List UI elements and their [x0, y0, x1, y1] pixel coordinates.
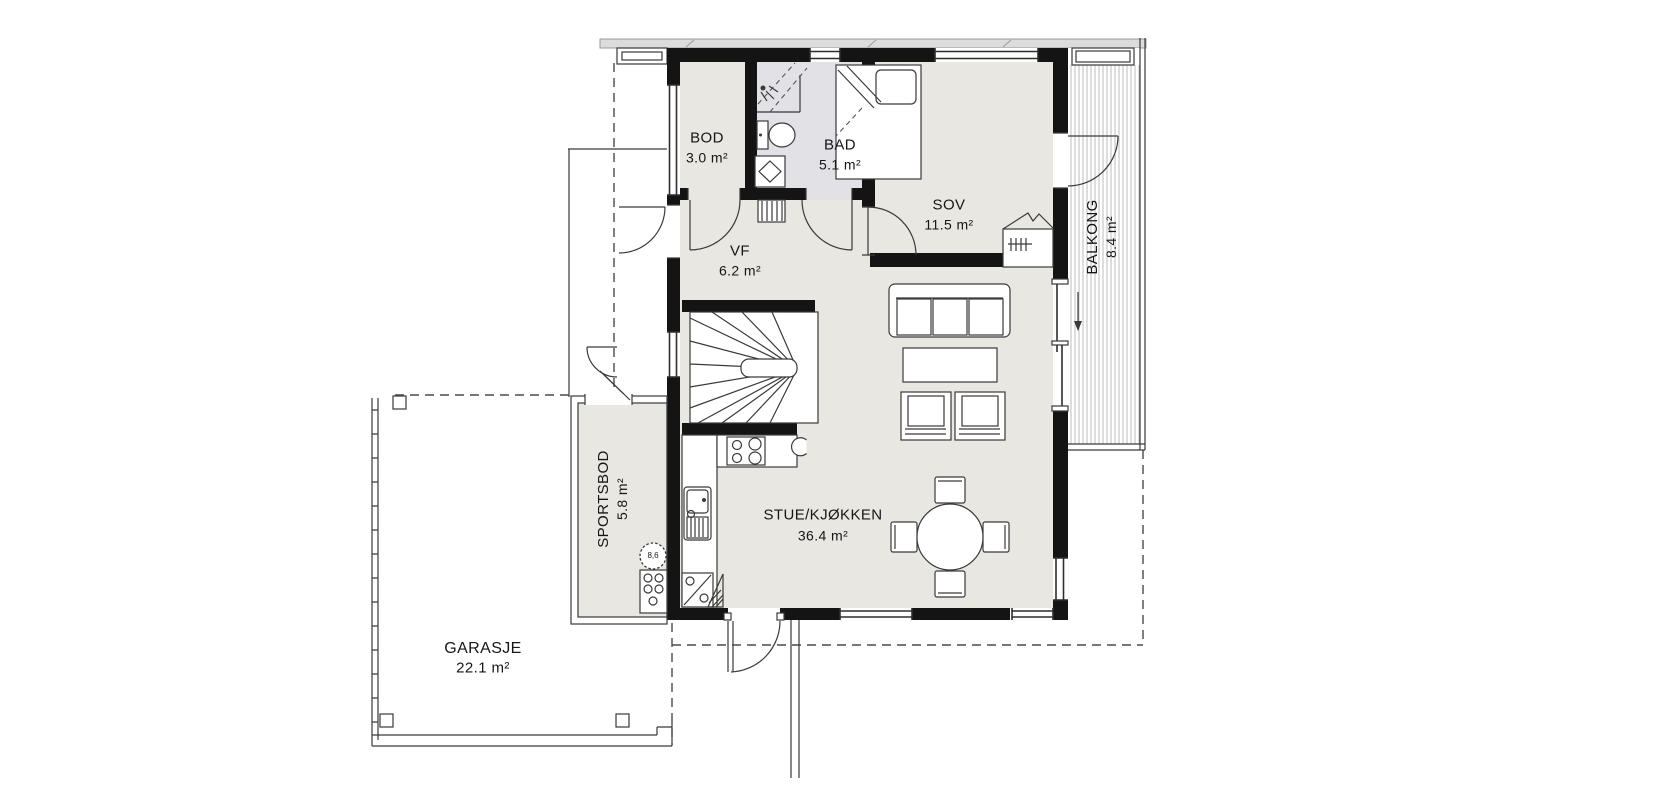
sofa [889, 284, 1010, 337]
sportsbod-area: 5.8 m² [614, 450, 632, 548]
coffee-table [903, 348, 997, 382]
room-area-bad: 5.1 m² [819, 156, 861, 174]
armchair [955, 392, 1005, 440]
post [380, 714, 393, 727]
room-label-balkong: BALKONG 8.4 m² [1084, 199, 1120, 274]
room-label-vf: VF [730, 243, 750, 262]
room-label-bad: BAD [824, 137, 856, 156]
window-bod-left [667, 85, 680, 195]
room-area-vf: 6.2 m² [719, 262, 761, 280]
floor-plan-page: BOD 3.0 m² BAD 5.1 m² SOV 11.5 m² VF 6.2… [0, 0, 1670, 800]
well-label: 8,6 [647, 551, 658, 561]
toilet [757, 121, 795, 149]
balcony-planter [1072, 48, 1134, 65]
floor-plan-drawing [0, 0, 1670, 800]
sliding-door-balcony [1052, 279, 1068, 411]
pipe-symbol [792, 438, 807, 456]
post [616, 714, 629, 727]
stair-handrail [741, 359, 797, 377]
balkong-name: BALKONG [1084, 199, 1103, 274]
living-furniture [889, 284, 1010, 597]
door-bod-exterior [619, 207, 665, 253]
window-stue-bottom [840, 608, 912, 620]
window-dining-bottom [1012, 608, 1053, 620]
window-bad-top [810, 48, 840, 62]
window-stair-left [667, 332, 680, 377]
entrance-walkway [791, 620, 799, 778]
room-label-stue: STUE/KJØKKEN [764, 507, 883, 526]
room-area-sov: 11.5 m² [924, 216, 973, 234]
floor-drain [755, 156, 785, 187]
room-area-bod: 3.0 m² [686, 149, 728, 167]
door-entrance [724, 613, 784, 672]
room-area-garasje: 22.1 m² [456, 660, 510, 679]
staircase [690, 312, 818, 423]
sportsbod-name: SPORTSBOD [595, 450, 614, 548]
post [393, 396, 406, 409]
armchair [901, 392, 951, 440]
room-label-sov: SOV [933, 197, 966, 216]
porch-lines [568, 48, 667, 397]
window-stue-right [1053, 558, 1068, 600]
room-label-sportsbod: SPORTSBOD 5.8 m² [595, 450, 631, 548]
roof-eaves-band [600, 39, 1146, 48]
room-label-bod: BOD [690, 130, 724, 149]
balkong-area: 8.4 m² [1103, 199, 1121, 274]
room-area-stue: 36.4 m² [798, 527, 848, 545]
porch-window [617, 48, 667, 64]
dining-table [917, 504, 983, 570]
vf-niche [758, 200, 785, 222]
window-sov-top [935, 48, 1038, 62]
fridge [682, 573, 713, 607]
room-label-garasje: GARASJE [444, 639, 522, 659]
water-heater [640, 570, 667, 613]
